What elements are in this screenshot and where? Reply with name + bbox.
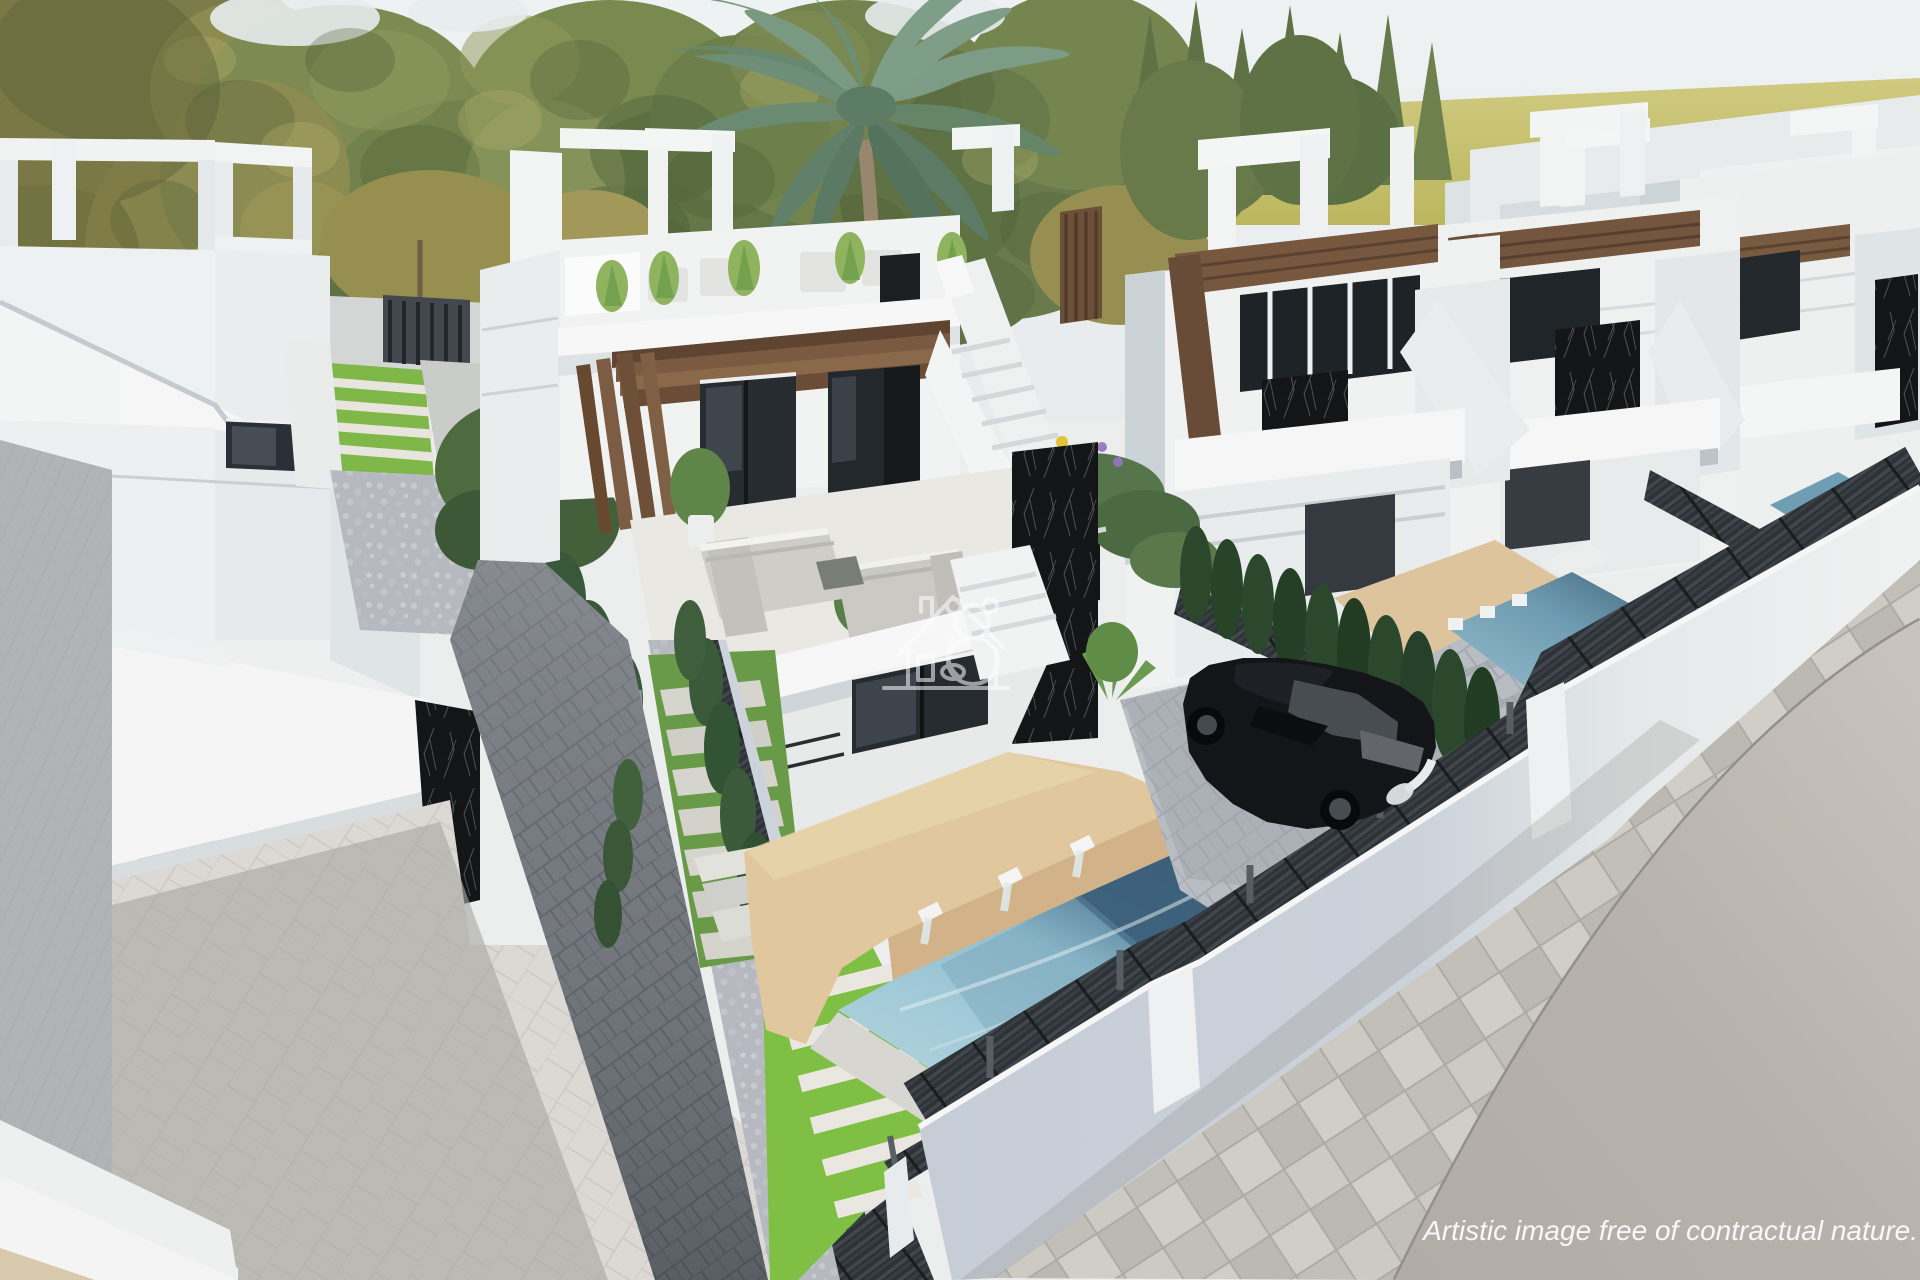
svg-text:Artistic image free of contrac: Artistic image free of contractual natur… [1421, 1215, 1918, 1246]
